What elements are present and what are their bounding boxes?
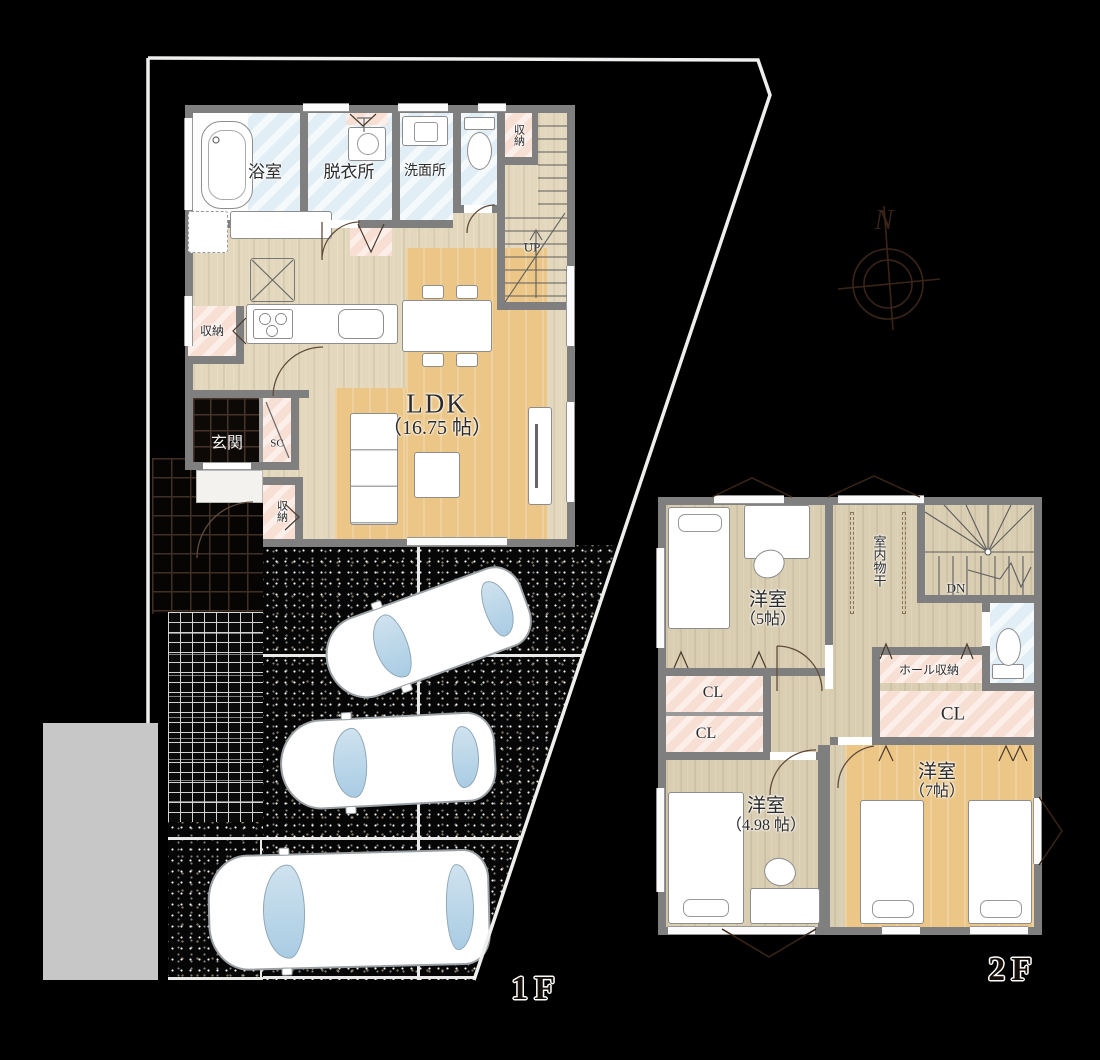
- bed-7j-right: [968, 800, 1032, 924]
- bed-498j-pillow: [683, 899, 729, 917]
- entrance-storage-label: 収納: [276, 500, 287, 522]
- concrete-slab: [43, 723, 158, 980]
- wall-entrance-storage-right: [295, 477, 303, 547]
- toilet-tank-2f: [992, 664, 1024, 679]
- door-gap-toilet-2f: [982, 612, 990, 646]
- washing-machine: [348, 127, 386, 161]
- dining-chair-3: [422, 353, 444, 367]
- wall-storage-col-top: [872, 647, 982, 655]
- wall-hall-stairs: [917, 505, 925, 603]
- parking-divider-h3: [168, 837, 263, 840]
- bedroom5-size-label: （5帖）: [740, 612, 796, 628]
- kitchen-back-counter: [230, 211, 332, 239]
- wall-cl-left-right: [763, 668, 771, 756]
- car-middle: [278, 710, 498, 811]
- bedroom7-name-label: 洋室: [918, 763, 956, 782]
- floor2-tag: 2F: [988, 951, 1038, 989]
- wall-bed5-hall: [825, 505, 833, 668]
- wall-bed498-top: [666, 752, 770, 760]
- dressing-label: 脱衣所: [324, 164, 375, 181]
- bed-7j-left: [860, 800, 924, 924]
- tv-screen: [535, 424, 538, 488]
- bathtub: [201, 121, 253, 209]
- window-1f-left-kitchen: [184, 296, 193, 346]
- parking-divider-h2: [263, 837, 521, 840]
- stairs-down-label: DN: [947, 582, 966, 595]
- car-bottom-rear-window: [445, 864, 475, 950]
- bed-5j: [668, 507, 730, 629]
- dining-chair-1: [422, 285, 444, 299]
- window-2f-bottom-bed498a: [668, 926, 724, 935]
- dining-chair-4: [456, 353, 478, 367]
- porch: [196, 470, 263, 503]
- dining-chair-2: [456, 285, 478, 299]
- toilet-storage-label: 収納: [513, 124, 524, 146]
- entrance-tiles: [193, 398, 259, 462]
- closet-left-upper-label: CL: [703, 685, 723, 701]
- wall-stairs-bottom-2f: [925, 595, 1034, 603]
- bed-7j-left-pillow: [872, 900, 914, 918]
- wall-kitchen-storage-right: [236, 306, 244, 364]
- wall-corridor-storage: [872, 647, 880, 745]
- bed-498j: [668, 792, 744, 924]
- door-gap-toilet-1f: [464, 205, 492, 213]
- wall-between-cls: [666, 712, 763, 716]
- window-2f-left-bed5: [656, 548, 665, 648]
- compass-north-label: N: [875, 207, 894, 235]
- wall-entrance-top: [193, 390, 295, 398]
- wall-kitchen-storage-bottom: [188, 356, 236, 364]
- washroom-label: 洗面所: [404, 165, 446, 179]
- window-1f-top-toilet: [478, 103, 506, 112]
- car-middle-mirror-left: [341, 712, 352, 721]
- bedroom7-size-label: （7帖）: [909, 784, 965, 800]
- entrance-door-gap: [203, 462, 251, 470]
- washing-machine-drum: [357, 133, 379, 155]
- wall-dressing-washroom: [392, 113, 400, 220]
- brick-paving: [168, 612, 263, 822]
- window-2f-bottom-bed498b: [723, 926, 815, 935]
- bathtub-inner: [208, 130, 246, 200]
- bedroom498-size-label: （4.98 帖）: [726, 818, 806, 834]
- toilet-bowl-1f: [467, 132, 492, 170]
- closet-right-label: CL: [941, 705, 965, 724]
- bath-label: 浴室: [248, 164, 282, 181]
- wall-storage-stairs: [532, 113, 538, 157]
- window-2f-left-bed498: [656, 788, 665, 892]
- bed-5j-pillow: [678, 514, 722, 532]
- parking-edge-bottom-left: [168, 977, 263, 980]
- coffee-table: [414, 452, 460, 498]
- shoe-closet-label: SC: [270, 439, 283, 450]
- wall-ldk-hall-stub: [295, 390, 309, 398]
- refrigerator-space: [250, 258, 295, 302]
- tv-board: [528, 407, 552, 505]
- window-2f-top-hall: [838, 495, 924, 504]
- car-middle-rear-window: [450, 725, 481, 788]
- parking-edge-bottom: [263, 976, 474, 979]
- wall-toilet2f-bottom: [982, 683, 1034, 691]
- floor1-tag: 1F: [511, 970, 561, 1008]
- bed-7j-right-pillow: [980, 900, 1022, 918]
- hall-storage-label: ホール収納: [899, 664, 959, 676]
- kitchen-sink: [338, 309, 384, 339]
- window-1f-left-bath: [184, 118, 193, 210]
- dressing-closet: [346, 113, 388, 125]
- window-1f-right-ldk: [566, 402, 575, 502]
- car-bottom-mirror-left: [278, 848, 289, 856]
- window-1f-bottom-ldk: [407, 537, 507, 546]
- laundry-pole-2: [902, 512, 906, 614]
- vanity-bowl: [414, 122, 438, 142]
- wall-bath-dressing: [300, 113, 308, 220]
- bedroom5-name-label: 洋室: [749, 591, 787, 610]
- window-1f-right-dining: [566, 266, 575, 346]
- entrance-label: 玄関: [211, 436, 243, 452]
- window-1f-top-dressing: [303, 103, 349, 112]
- car-middle-windshield: [331, 727, 369, 799]
- wall-toilet-storage-bottom: [505, 157, 538, 165]
- closet-left-lower-label: CL: [696, 726, 716, 742]
- car-top-rear-window: [475, 577, 520, 640]
- shoe-closet: [263, 398, 291, 462]
- car-top-windshield: [365, 610, 418, 683]
- wall-entrance-sc: [259, 398, 263, 462]
- window-2f-bottom-bed7b: [970, 926, 1028, 935]
- bedroom498-name-label: 洋室: [747, 797, 785, 816]
- laundry-pole-1: [850, 512, 854, 614]
- pantry-dashed: [188, 211, 228, 253]
- wall-stairs-bottom-1f: [497, 302, 567, 310]
- kitchen-storage-label: 収納: [200, 325, 224, 337]
- door-gap-bed5: [825, 645, 833, 689]
- door-gap-bed498: [770, 752, 816, 760]
- door-gap-dressing: [318, 220, 358, 228]
- ldk-size-label: （16.75 帖）: [382, 418, 492, 438]
- car-bottom-mirror-right: [281, 968, 292, 976]
- ldk-name-label: LDK: [406, 391, 468, 418]
- floor-plan-canvas: 浴室 脱衣所 洗面所 収納 UP 収納 玄関 SC 収納 LDK （16.75 …: [0, 0, 1100, 1060]
- toilet-bowl-2f: [996, 628, 1021, 666]
- stairs-up-label: UP: [524, 241, 541, 254]
- window-2f-bottom-bed7a: [882, 926, 920, 935]
- window-2f-top-bed5: [714, 495, 784, 504]
- desk-498j: [750, 888, 820, 924]
- dining-island: [402, 300, 492, 352]
- toilet-tank-1f: [464, 117, 495, 130]
- car-bottom-windshield: [262, 864, 306, 959]
- window-1f-top-washroom: [398, 103, 448, 112]
- stove: [253, 309, 293, 339]
- door-gap-bed7: [838, 737, 872, 745]
- wall-washroom-toilet: [453, 113, 461, 205]
- vanity-sink: [402, 116, 448, 146]
- car-middle-mirror-right: [346, 806, 357, 815]
- wall-bed5-bottom: [666, 668, 825, 676]
- drying-label: 室内物干: [873, 535, 886, 587]
- window-2f-right-bed7: [1033, 798, 1042, 864]
- car-bottom-van: [207, 848, 492, 971]
- wall-sc-right: [291, 398, 299, 470]
